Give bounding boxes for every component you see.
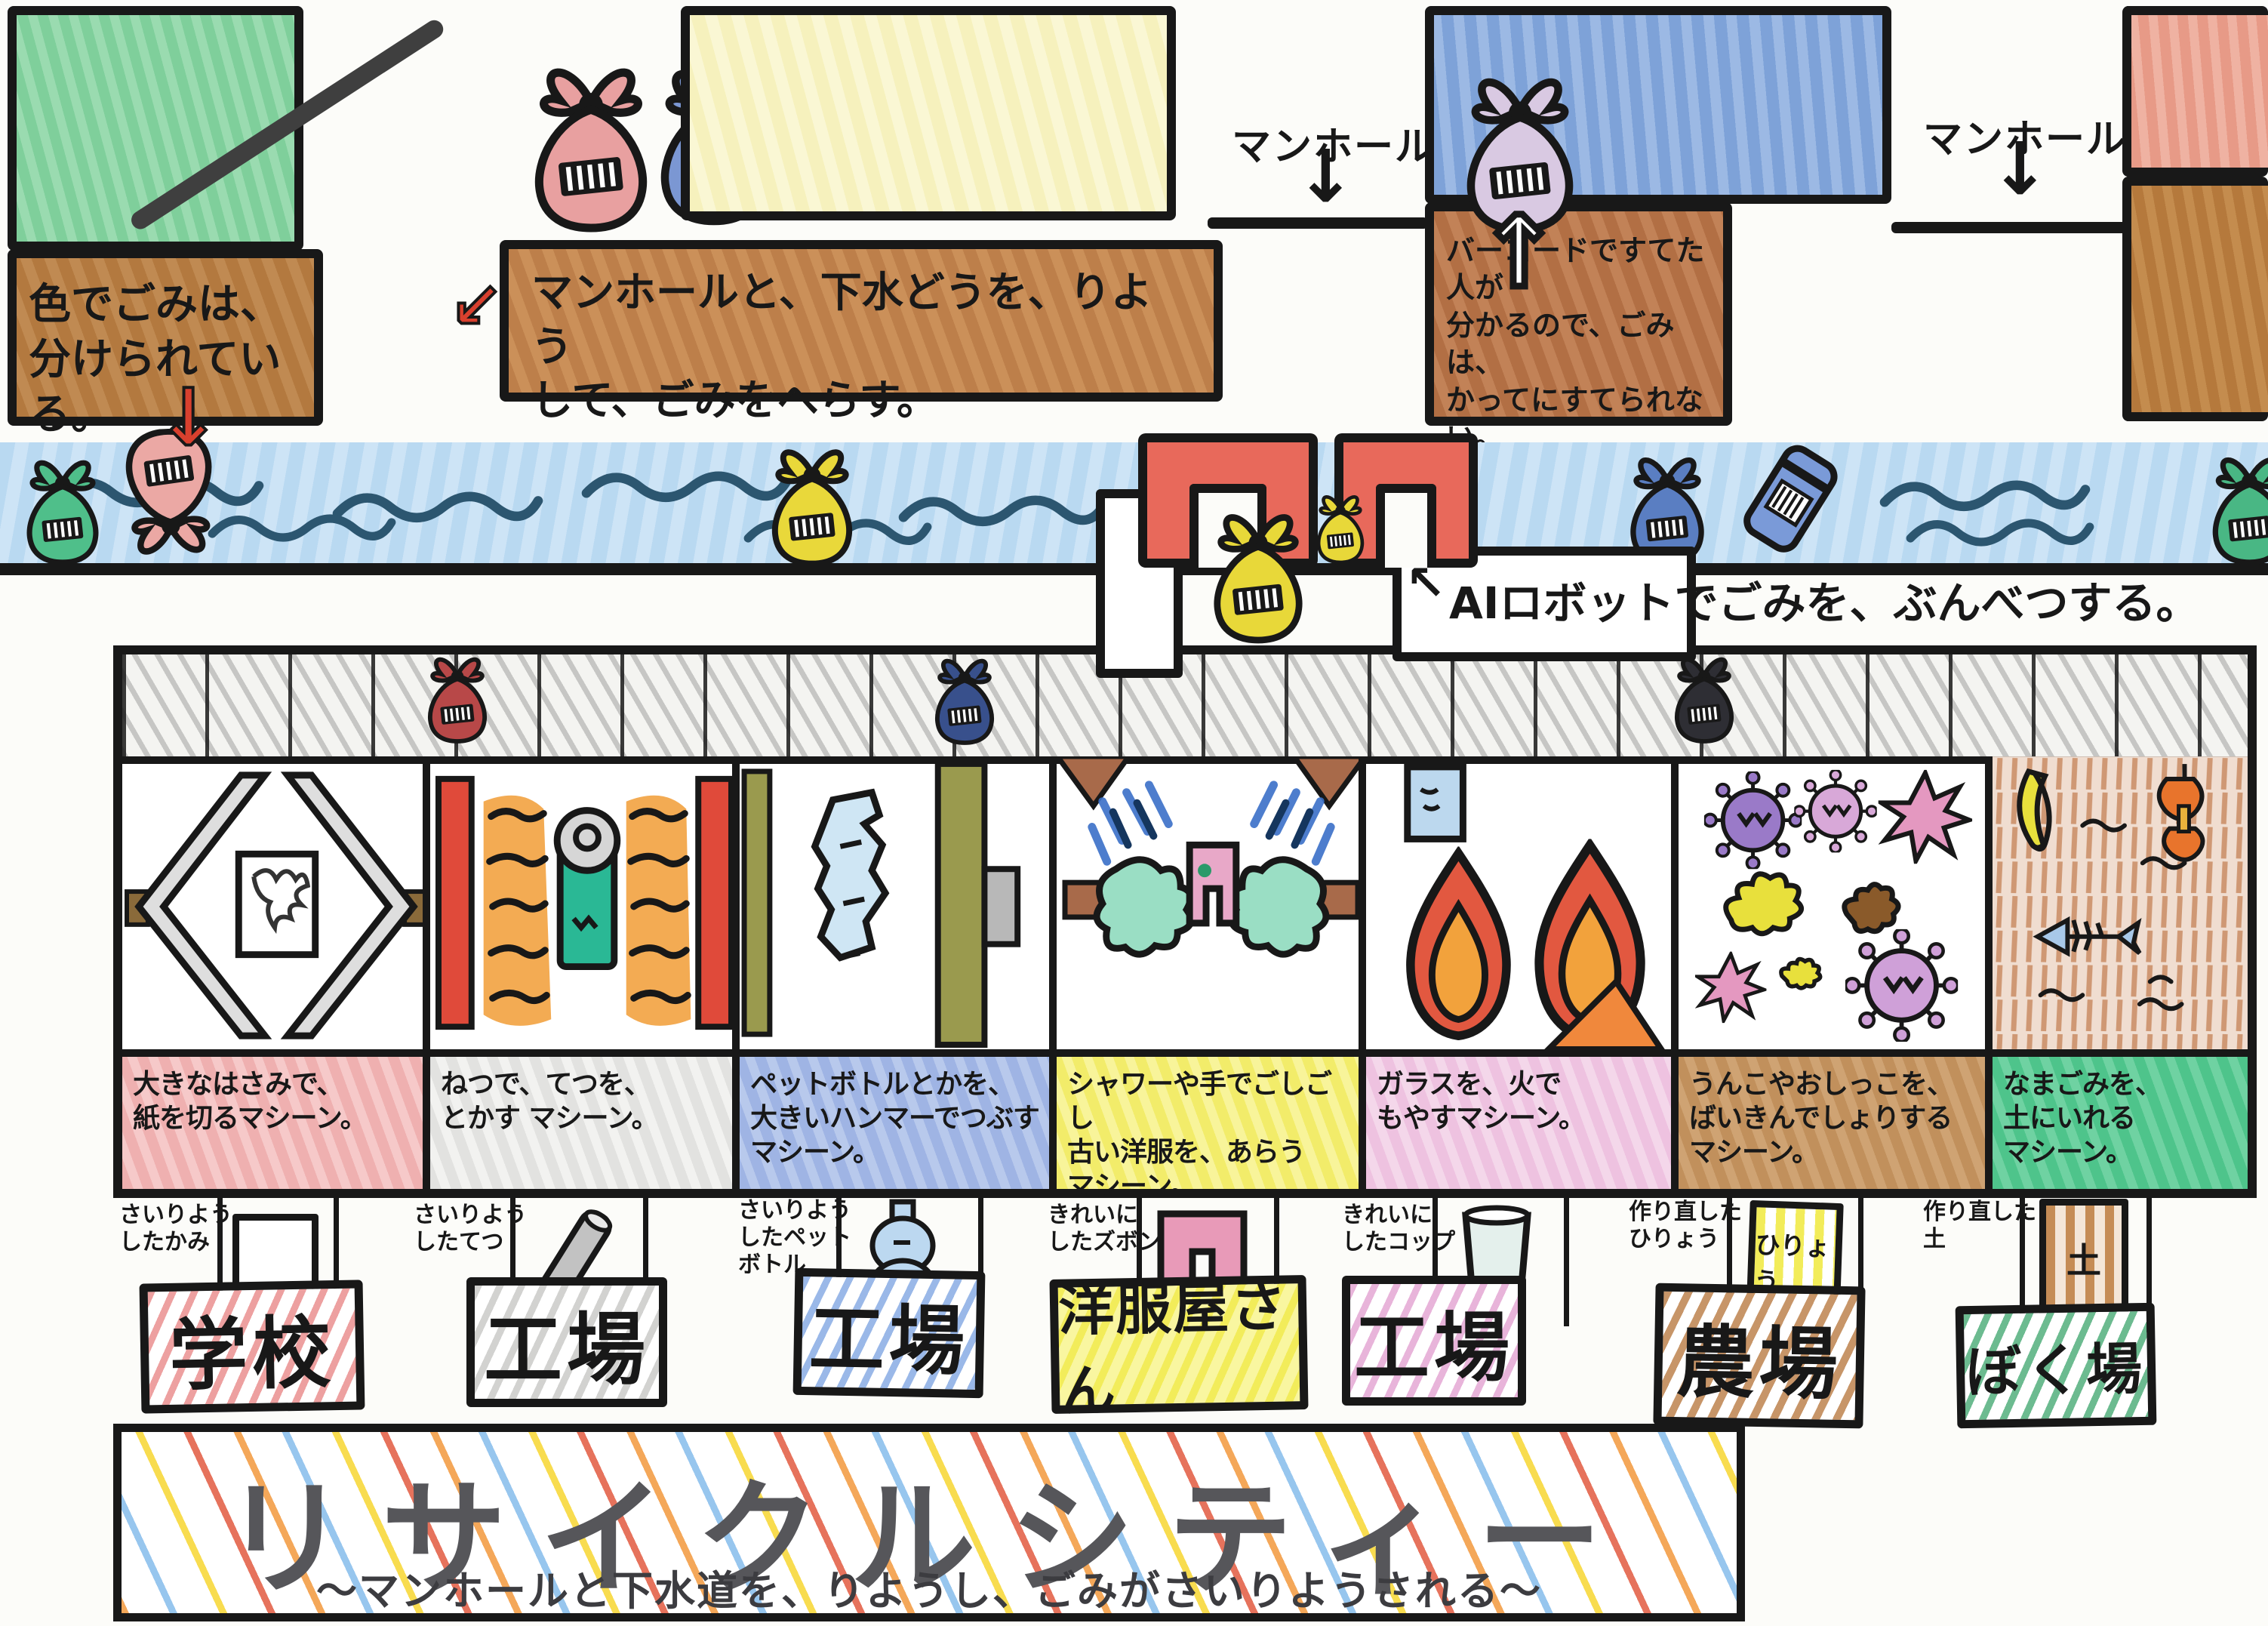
fire-machine-drawing	[1366, 756, 1679, 1049]
yellow-river-bag-icon	[756, 438, 868, 566]
belt-bag-black-icon	[1666, 648, 1742, 744]
shower-machine-drawing	[1057, 756, 1366, 1049]
pink-trash-bag-icon	[519, 39, 663, 245]
machine-description: なまごみを、 土にいれる マシーン。	[1993, 1049, 2248, 1189]
compost-drawing	[1993, 756, 2248, 1049]
output-label: きれいに したズボン	[1048, 1202, 1161, 1256]
street-line-2	[1891, 222, 2127, 233]
floating-barrel-icon	[1733, 435, 1846, 563]
brown-building	[2122, 177, 2268, 421]
machine-iron-melter: ねつで、てつを、 とかす マシーン。	[423, 756, 740, 1189]
ai-robot-note: AIロボットでごみを、ぶんべつする。	[1449, 568, 2199, 631]
destination-sign-factory-1: 工場	[466, 1277, 667, 1407]
machine-glass-burner: ガラスを、火で もやすマシーン。	[1359, 756, 1679, 1189]
melting-machine-drawing	[430, 756, 740, 1049]
belt-bag-red-icon	[420, 648, 495, 744]
destination-sign-factory-3: 工場	[1342, 1276, 1526, 1406]
machine-description: ガラスを、火で もやすマシーン。	[1366, 1049, 1679, 1189]
destination-sign-school: 学校	[140, 1280, 365, 1413]
machine-sewage-processor: うんこやおしっこを、 ばいきんでしょりする マシーン。	[1671, 756, 1993, 1189]
machine-paper-cutter: 大きなはさみで、 紙を切るマシーン。	[122, 756, 430, 1189]
machine-description: 大きなはさみで、 紙を切るマシーン。	[122, 1049, 430, 1189]
chute-line	[1564, 1196, 1569, 1326]
small-yellow-bag-icon	[1310, 485, 1371, 568]
banner-arrow-icon: ↙	[450, 269, 503, 343]
belt-bag-navy-icon	[927, 649, 1002, 746]
manhole-arrow-1-icon: ↓	[1295, 148, 1356, 206]
destination-sign-factory-2: 工場	[793, 1268, 986, 1398]
green-river-bag-icon	[17, 450, 109, 565]
scissors-machine-drawing	[122, 756, 430, 1049]
destination-sign-farm: 農場	[1653, 1283, 1865, 1429]
ai-pointer-icon: ↖	[1405, 556, 1446, 611]
manhole-arrow-2-icon: ↓	[1990, 140, 2050, 199]
machine-compost: なまごみを、 土にいれる マシーン。	[1985, 756, 2248, 1189]
poster-title-band: リサイクルシティー 〜マンホールと下水道を、りようし、ごみがさいりようされる〜	[113, 1424, 1745, 1621]
street-line-1	[1208, 217, 1428, 229]
bag-up-arrow-icon: ↑	[1478, 195, 1560, 309]
green-river-bag-right-icon	[2202, 445, 2268, 566]
output-label: さいりよう したペット ボトル	[738, 1197, 851, 1279]
destination-sign-clothes-shop: 洋服屋さん	[1049, 1275, 1308, 1414]
machine-description: うんこやおしっこを、 ばいきんでしょりする マシーン。	[1679, 1049, 1993, 1189]
soil-bag-icon: 土	[2039, 1199, 2128, 1318]
germs-drawing	[1679, 756, 1993, 1049]
machine-bottle-crusher: ペットボトルとかを、 大きいハンマーでつぶす マシーン。	[732, 756, 1057, 1189]
hammer-machine-drawing	[740, 756, 1057, 1049]
machine-description: シャワーや手でごしごし 古い洋服を、あらう マシーン。	[1057, 1049, 1366, 1189]
sorted-yellow-bag-icon	[1202, 459, 1315, 685]
destination-sign-pasture: ぼく場	[1956, 1303, 2157, 1429]
yellow-building	[681, 6, 1176, 220]
poster-subtitle: 〜マンホールと下水道を、りようし、ごみがさいりようされる〜	[122, 1557, 1737, 1617]
machine-clothes-washer: シャワーや手でごしごし 古い洋服を、あらう マシーン。	[1049, 756, 1366, 1189]
salmon-building	[2122, 6, 2268, 177]
output-label: さいりよう したかみ	[119, 1202, 232, 1256]
machine-description: ねつで、てつを、 とかす マシーン。	[430, 1049, 740, 1189]
recycle-city-poster: 色でごみは、 分けられている。 ↙ マンホールと、下水どうを、りよう して、ごみ…	[0, 0, 2268, 1626]
output-label: きれいに したコップ	[1342, 1202, 1455, 1256]
river-arrow-icon: ↓	[155, 371, 221, 463]
banner-manhole-note: マンホールと、下水どうを、りよう して、ごみをへらす。	[500, 240, 1223, 402]
output-label: 作り直した ひりょう	[1629, 1199, 1742, 1253]
machine-description: ペットボトルとかを、 大きいハンマーでつぶす マシーン。	[740, 1049, 1057, 1189]
